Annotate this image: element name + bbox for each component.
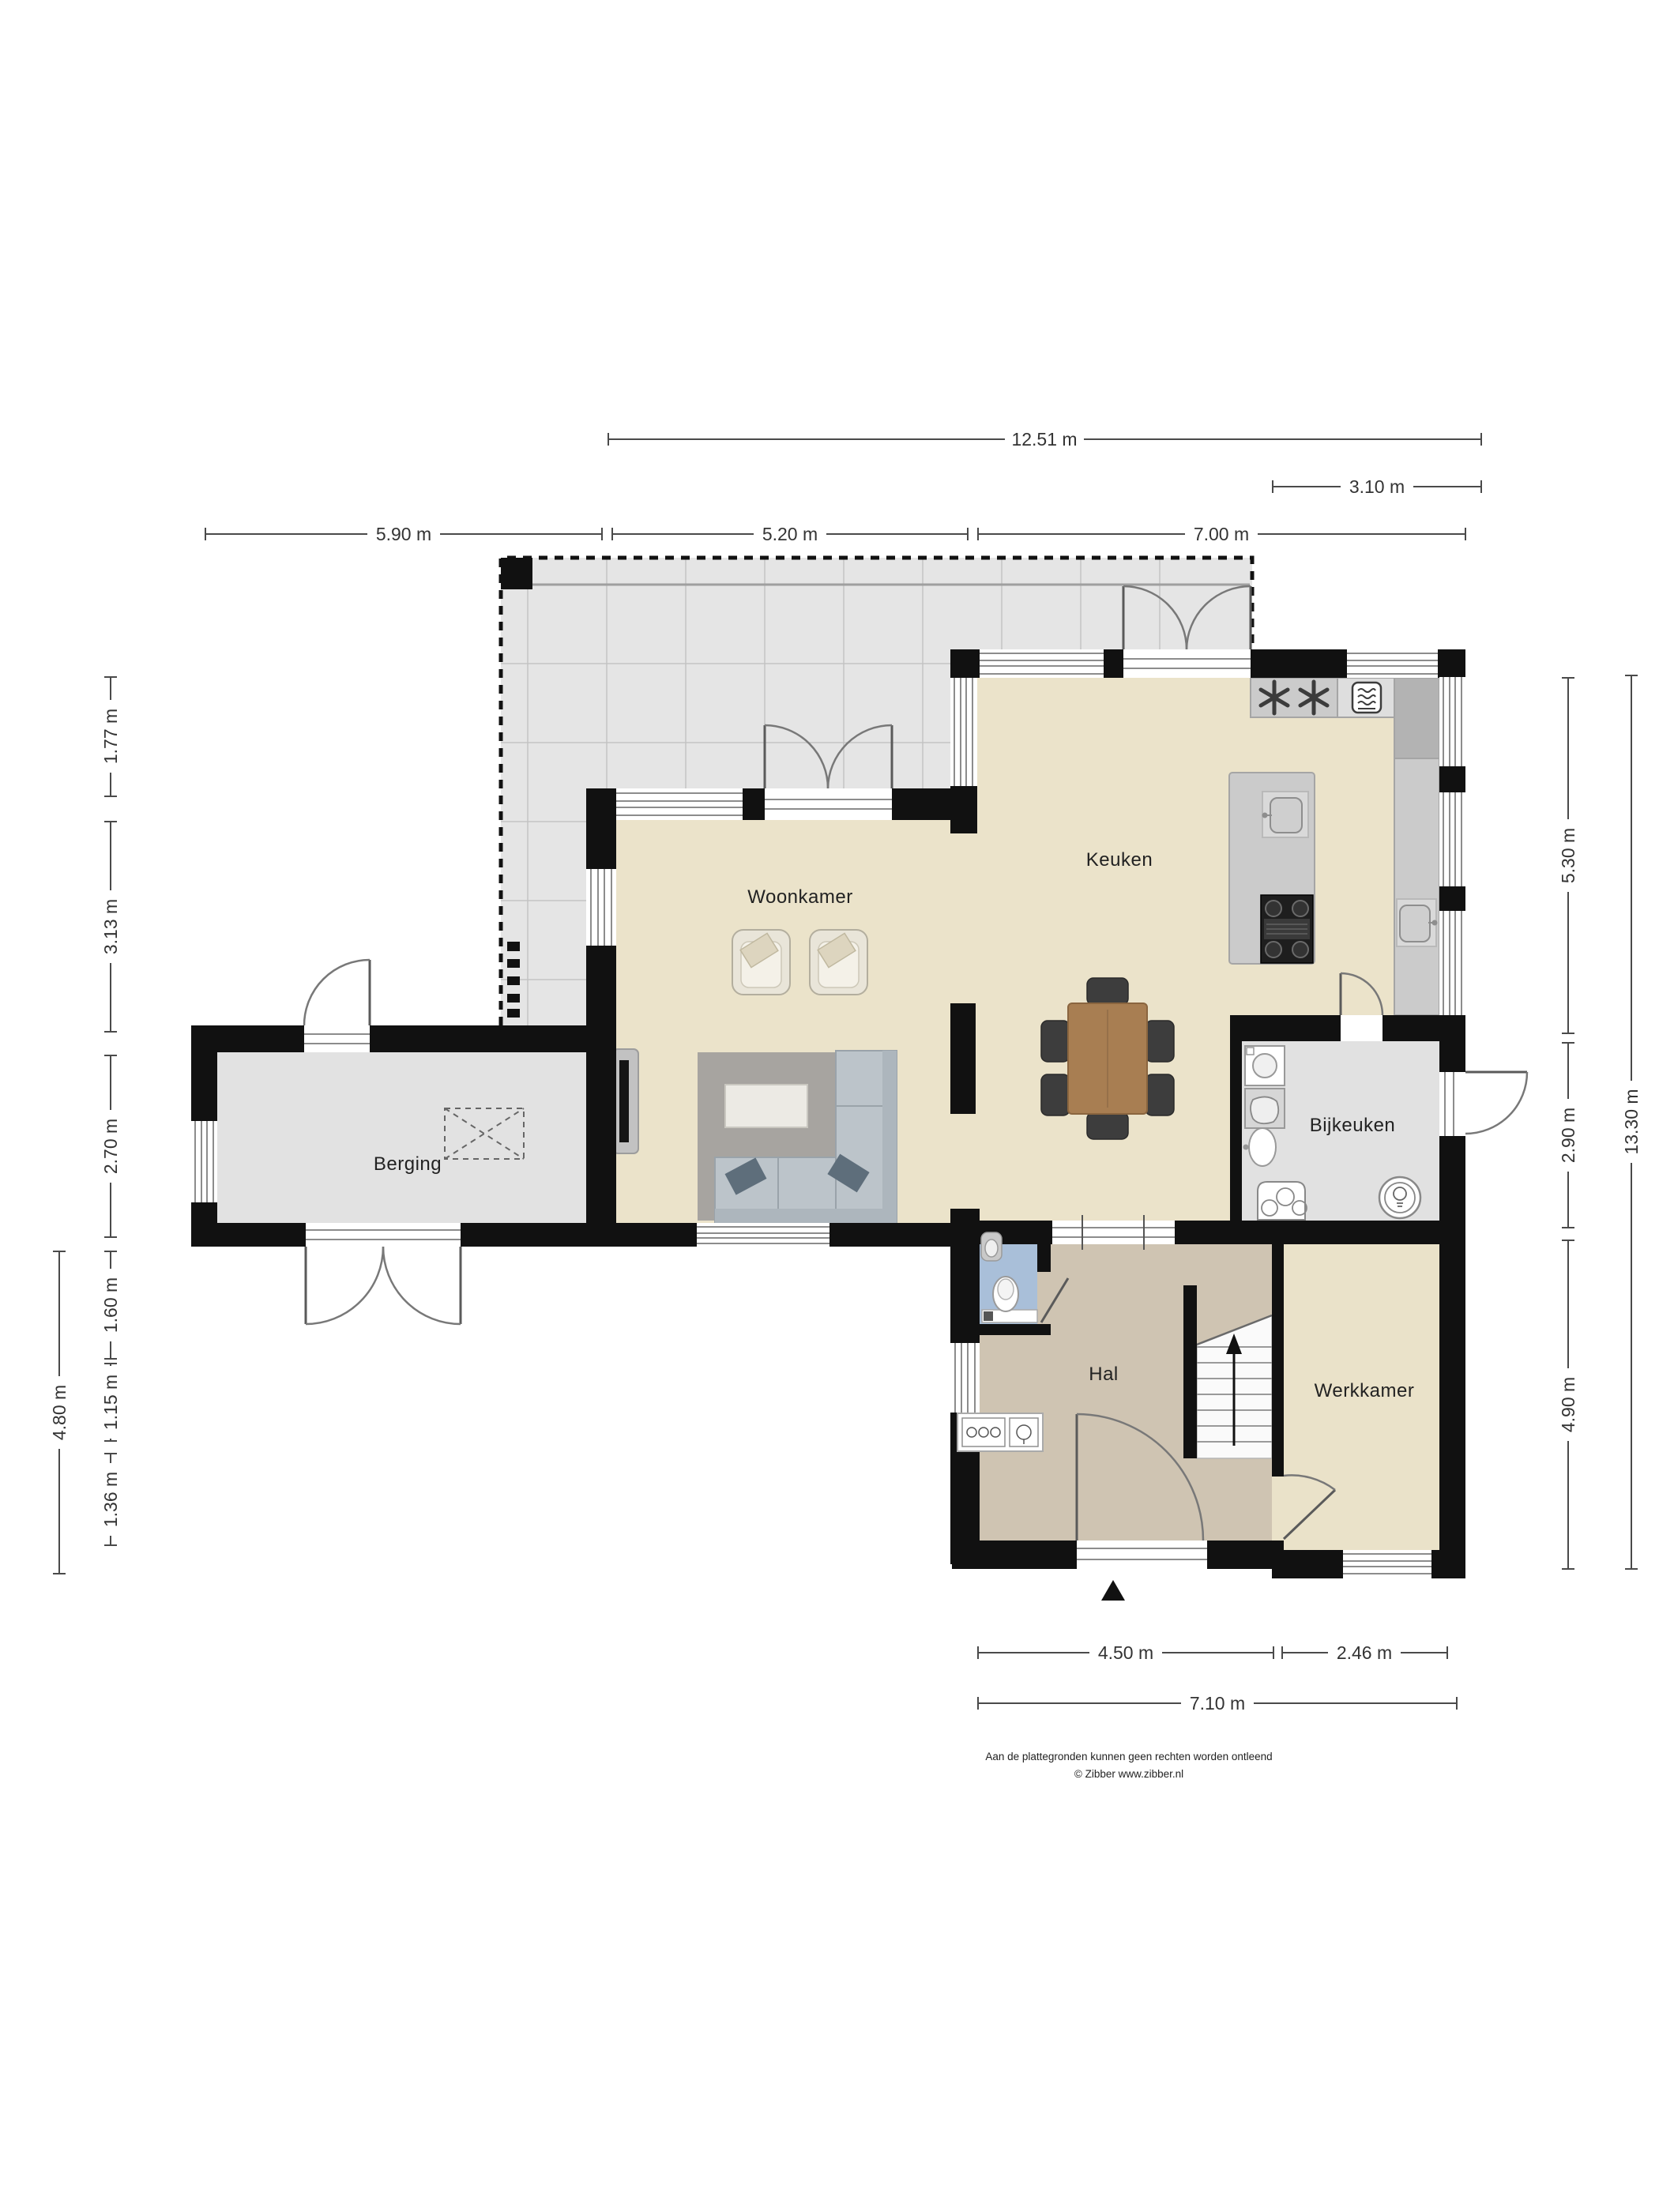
svg-text:1.36 m: 1.36 m <box>100 1472 121 1527</box>
toilet <box>993 1277 1018 1311</box>
dim-left-seg3: 2.70 m <box>100 1055 122 1237</box>
svg-text:1.15 m: 1.15 m <box>100 1375 121 1430</box>
dim-bottom-hal: 4.50 m <box>978 1642 1273 1664</box>
corner-sink <box>981 1232 1002 1261</box>
window <box>616 788 743 820</box>
counter-sink <box>1397 899 1438 946</box>
svg-text:3.13 m: 3.13 m <box>100 899 121 954</box>
window <box>586 869 616 946</box>
tall-cabinet <box>1394 678 1439 758</box>
dim-left-seg4: 1.60 m <box>100 1251 122 1359</box>
label-bijkeuken: Bijkeuken <box>1310 1115 1396 1136</box>
dim-right-bijkeuken: 2.90 m <box>1557 1043 1579 1228</box>
label-keuken: Keuken <box>1086 849 1153 871</box>
svg-text:3.10 m: 3.10 m <box>1349 476 1405 497</box>
dim-left-seg5: 1.15 m <box>100 1364 122 1441</box>
window <box>1439 792 1465 886</box>
double-doors-berging <box>306 1223 461 1324</box>
svg-text:7.00 m: 7.00 m <box>1194 524 1249 544</box>
window <box>1439 911 1465 1015</box>
window <box>950 678 977 786</box>
toilet-drain <box>984 1311 993 1321</box>
svg-text:7.10 m: 7.10 m <box>1190 1693 1245 1714</box>
water-heater-icon <box>1258 1182 1307 1220</box>
label-woonkamer: Woonkamer <box>747 886 852 908</box>
kitchen-island <box>1229 773 1315 964</box>
kitchen-counter-top <box>1251 678 1394 717</box>
dryer-icon <box>1245 1089 1285 1128</box>
svg-text:5.30 m: 5.30 m <box>1558 828 1578 883</box>
label-werkkamer: Werkkamer <box>1315 1380 1415 1401</box>
window <box>697 1223 829 1247</box>
dim-top-right-section: 3.10 m <box>1273 476 1481 498</box>
kitchen-counter-right <box>1394 678 1439 1015</box>
svg-text:2.46 m: 2.46 m <box>1337 1642 1392 1663</box>
toilet-wall <box>1037 1221 1051 1272</box>
tv <box>619 1060 629 1142</box>
label-hal: Hal <box>1089 1364 1119 1385</box>
svg-text:2.90 m: 2.90 m <box>1558 1108 1578 1163</box>
svg-text:2.70 m: 2.70 m <box>100 1119 121 1174</box>
floorplan-canvas: Woonkamer Keuken Berging Bijkeuken Hal W… <box>0 0 1659 2212</box>
window <box>191 1121 217 1202</box>
door-bijkeuken-exterior <box>1439 1072 1527 1136</box>
dim-top-keuken: 7.00 m <box>978 523 1465 545</box>
svg-text:12.51 m: 12.51 m <box>1011 429 1077 450</box>
coffee-table <box>725 1085 807 1127</box>
svg-text:5.20 m: 5.20 m <box>762 524 818 544</box>
dim-bottom-werkkamer: 2.46 m <box>1282 1642 1447 1664</box>
window <box>950 1343 980 1413</box>
window <box>1439 677 1465 766</box>
entrance-arrow-icon <box>1101 1580 1125 1601</box>
window <box>1343 1550 1431 1578</box>
dim-bottom-total: 7.10 m <box>978 1692 1457 1714</box>
washer-icon <box>1245 1046 1285 1085</box>
dim-right-keuken: 5.30 m <box>1557 678 1579 1033</box>
room-divider-wall <box>950 1003 976 1114</box>
armchair <box>810 930 867 995</box>
svg-text:1.60 m: 1.60 m <box>100 1277 121 1333</box>
svg-text:4.50 m: 4.50 m <box>1098 1642 1153 1663</box>
boiler-icon <box>1379 1177 1420 1218</box>
window <box>1347 649 1438 678</box>
dim-right-total: 13.30 m <box>1620 675 1642 1569</box>
electric-meter-icon <box>962 1418 1005 1446</box>
footer-copyright: © Zibber www.zibber.nl <box>1074 1768 1183 1780</box>
meter-cupboard <box>957 1413 1043 1451</box>
stair-wall <box>1183 1285 1197 1458</box>
label-berging: Berging <box>374 1153 442 1175</box>
window <box>980 649 1104 678</box>
svg-text:4.90 m: 4.90 m <box>1558 1377 1578 1432</box>
dim-right-werkkamer: 4.90 m <box>1557 1240 1579 1569</box>
dim-left-seg2: 3.13 m <box>100 822 122 1032</box>
svg-text:5.90 m: 5.90 m <box>376 524 431 544</box>
dim-top-berging: 5.90 m <box>205 523 602 545</box>
tv-cabinet <box>613 1049 638 1153</box>
dim-left-seg1: 1.77 m <box>100 677 122 796</box>
footer-disclaimer: Aan de plattegronden kunnen geen rechten… <box>985 1751 1272 1762</box>
oven-icon <box>1352 683 1381 713</box>
terrace-corner-post <box>501 558 532 589</box>
dim-top-total: 12.51 m <box>608 428 1481 450</box>
page: { "rooms": { "woonkamer": "Woonkamer", "… <box>0 0 1659 2212</box>
svg-text:4.80 m: 4.80 m <box>49 1385 70 1440</box>
island-sink <box>1262 792 1309 837</box>
door-berging-top <box>304 960 370 1052</box>
dim-left-seg6: 1.36 m <box>100 1454 122 1545</box>
room-berging-floor <box>217 1052 600 1223</box>
cooktop <box>1261 895 1313 963</box>
dim-left-outer: 4.80 m <box>48 1251 70 1574</box>
armchair <box>732 930 790 995</box>
dim-top-woonkamer: 5.20 m <box>612 523 968 545</box>
svg-text:1.77 m: 1.77 m <box>100 709 121 764</box>
toilet-wall <box>980 1324 1051 1335</box>
svg-text:13.30 m: 13.30 m <box>1621 1089 1642 1154</box>
